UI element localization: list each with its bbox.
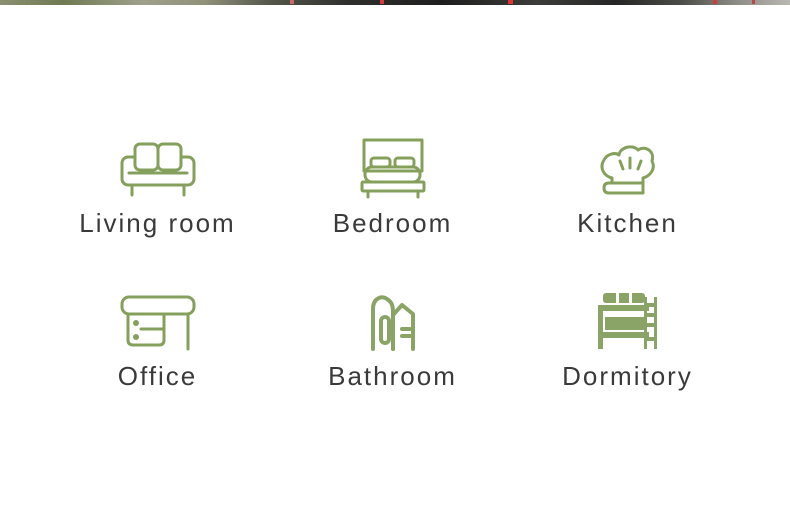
photo-speck — [508, 0, 513, 4]
category-office[interactable]: Office — [40, 293, 275, 391]
top-photo-edge — [0, 0, 790, 5]
chef-hat-icon — [597, 140, 659, 200]
category-label: Bedroom — [333, 208, 453, 238]
category-label: Living room — [79, 208, 235, 238]
category-kitchen[interactable]: Kitchen — [510, 140, 745, 238]
category-living-room[interactable]: Living room — [40, 140, 275, 238]
category-label: Office — [118, 361, 197, 391]
photo-speck — [713, 0, 717, 4]
room-category-grid: Living room Bedroom Kitch — [40, 140, 745, 391]
photo-speck — [290, 0, 294, 4]
bunk-bed-icon — [598, 293, 658, 353]
bed-icon — [360, 140, 426, 200]
category-dormitory[interactable]: Dormitory — [510, 293, 745, 391]
category-bathroom[interactable]: Bathroom — [275, 293, 510, 391]
sofa-icon — [120, 140, 196, 200]
category-bedroom[interactable]: Bedroom — [275, 140, 510, 238]
category-label: Kitchen — [577, 208, 678, 238]
desk-icon — [120, 293, 196, 353]
buildings-icon — [367, 293, 419, 353]
category-label: Dormitory — [562, 361, 693, 391]
photo-speck — [752, 0, 755, 4]
photo-speck — [380, 0, 384, 4]
category-label: Bathroom — [328, 361, 457, 391]
